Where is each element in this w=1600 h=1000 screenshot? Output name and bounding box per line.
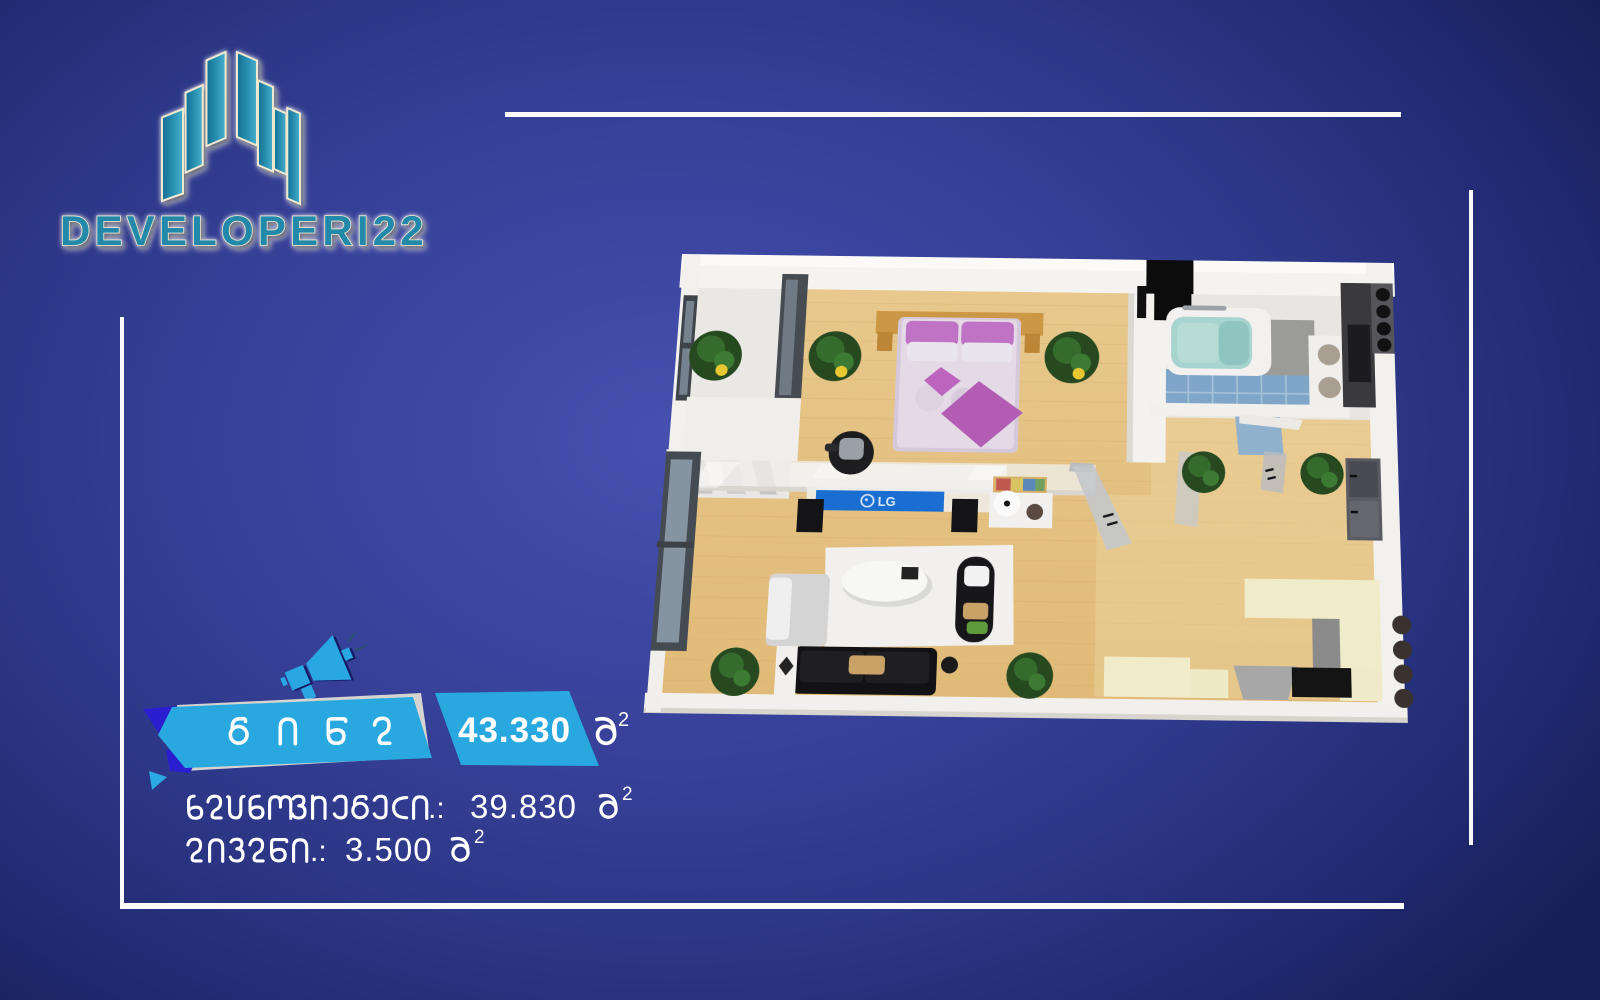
svg-text:2: 2 — [618, 709, 629, 731]
svg-text:43.330: 43.330 — [458, 711, 571, 750]
svg-text:2: 2 — [622, 784, 633, 805]
svg-text:.:: .: — [310, 835, 327, 868]
svg-text:DEVELOPERI22: DEVELOPERI22 — [60, 207, 428, 254]
svg-text:39.830: 39.830 — [470, 788, 577, 825]
svg-text:.:: .: — [428, 792, 445, 825]
svg-text:3.500: 3.500 — [345, 831, 433, 868]
svg-text:LG: LG — [877, 494, 896, 509]
svg-text:2: 2 — [474, 827, 485, 848]
